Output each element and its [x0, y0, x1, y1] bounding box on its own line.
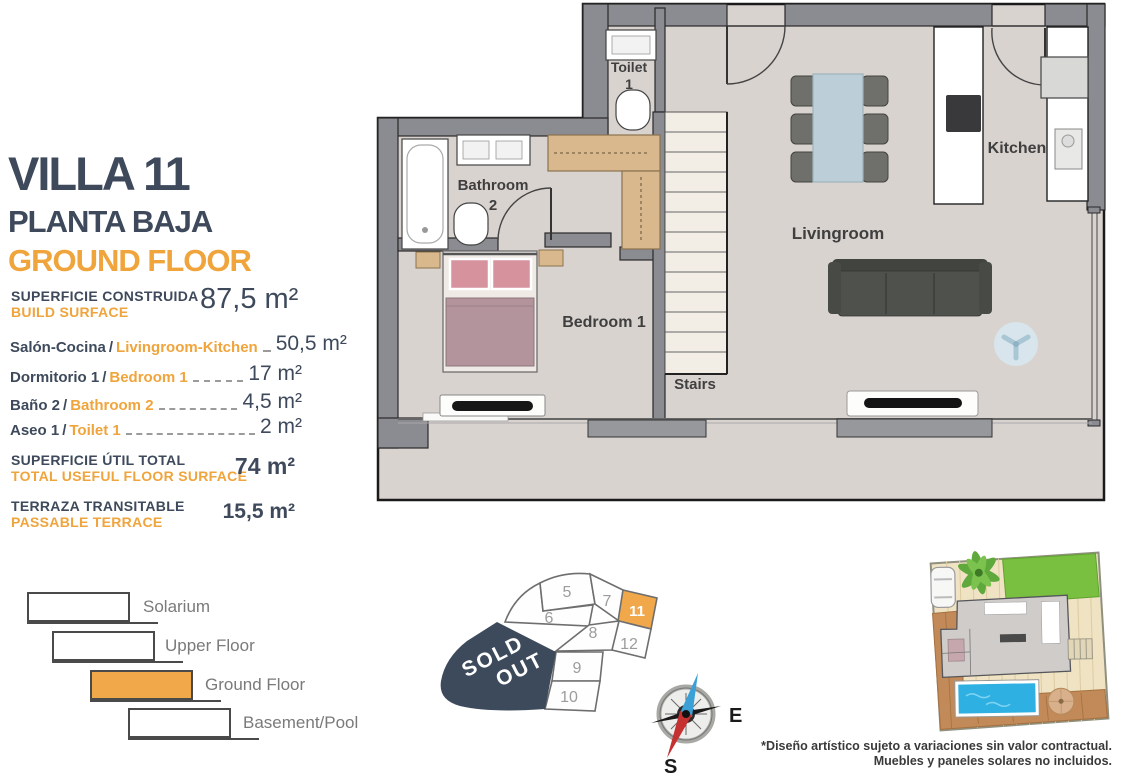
kitchen-label: Kitchen — [988, 140, 1047, 157]
legend-box-solarium — [27, 592, 130, 622]
disclaimer: *Diseño artístico sujeto a variaciones s… — [692, 739, 1112, 770]
legend-box-basement-pool — [128, 708, 231, 738]
area-row-label-en: Livingroom-Kitchen — [116, 339, 258, 356]
legend-item-upper-floor: Upper Floor — [52, 631, 272, 671]
bedroom-label: Bedroom 1 — [562, 314, 646, 331]
build-surface-value: 87,5 m² — [200, 283, 298, 316]
build-surface-label-en: BUILD SURFACE — [11, 304, 128, 320]
area-row-label-es: Salón-Cocina — [10, 339, 106, 356]
area-row-value: 2 m² — [260, 415, 302, 439]
plot-number-10: 10 — [560, 689, 578, 706]
floor-name-en: GROUND FLOOR — [8, 243, 251, 279]
livingroom-label: Livingroom — [792, 224, 885, 243]
fan — [994, 322, 1038, 366]
legend-baseline — [27, 622, 158, 624]
plot-number-5: 5 — [563, 584, 572, 601]
dining-set — [791, 74, 888, 182]
page-title: VILLA 11 — [8, 146, 189, 201]
legend-item-basement-pool: Basement/Pool — [128, 708, 378, 748]
dotted-leader — [126, 433, 255, 435]
legend-item-ground-floor: Ground Floor — [90, 670, 330, 710]
compass-east-label: E — [729, 705, 742, 727]
legend-box-ground-floor-highlighted — [90, 670, 193, 700]
area-row-label-en: Bathroom 2 — [70, 397, 153, 414]
plot-number-7: 7 — [603, 593, 612, 610]
sofa — [828, 259, 992, 316]
legend-item-solarium: Solarium — [27, 592, 247, 632]
sliding-door — [837, 419, 992, 437]
useful-surface-value: 74 m² — [180, 453, 295, 480]
bathroom-label: Bathroom — [458, 177, 529, 194]
area-row-bathroom-2: Baño 2 / Bathroom 2 4,5 m² — [10, 390, 302, 414]
plot-number-12: 12 — [620, 636, 638, 653]
area-row-value: 50,5 m² — [276, 332, 347, 356]
parasol — [1048, 688, 1074, 714]
disclaimer-line1: *Diseño artístico sujeto a variaciones s… — [692, 739, 1112, 754]
legend-label: Solarium — [143, 597, 210, 617]
plot-number-11: 11 — [629, 603, 645, 620]
bathroom-number: 2 — [489, 197, 497, 214]
area-row-label-es: Baño 2 — [10, 397, 60, 414]
area-row-label-en: Bedroom 1 — [109, 369, 187, 386]
mini-stairs — [1068, 639, 1092, 659]
living-tv-unit — [847, 391, 978, 416]
area-row-bedroom-1: Dormitorio 1 / Bedroom 1 17 m² — [10, 362, 302, 386]
legend-box-upper-floor — [52, 631, 155, 661]
plot-number-9: 9 — [573, 660, 582, 677]
area-row-label-es: Aseo 1 — [10, 422, 59, 439]
plot-number-6: 6 — [545, 610, 554, 627]
legend-baseline — [128, 738, 259, 740]
plot-map: 5 7 11 6 8 12 9 10 SOLD OUT — [441, 573, 657, 711]
terrace-label-en: PASSABLE TERRACE — [11, 514, 163, 530]
separator: / — [62, 422, 66, 439]
legend-label: Ground Floor — [205, 675, 305, 695]
plot-number-8: 8 — [589, 625, 598, 642]
legend-baseline — [90, 700, 221, 702]
area-row-living-kitchen: Salón-Cocina / Livingroom-Kitchen 50,5 m… — [10, 332, 302, 356]
toilet-label: Toilet — [611, 59, 648, 75]
useful-surface-label-es: SUPERFICIE ÚTIL TOTAL — [11, 452, 185, 468]
floor-name-es: PLANTA BAJA — [8, 204, 212, 240]
toilet-number: 1 — [625, 76, 633, 92]
sliding-door — [588, 420, 706, 437]
stairs — [665, 112, 727, 374]
site-plan-thumbnail — [930, 548, 1108, 731]
terrace-label-es: TERRAZA TRANSITABLE — [11, 498, 185, 514]
separator: / — [109, 339, 113, 356]
area-row-label-es: Dormitorio 1 — [10, 369, 99, 386]
terrace-value: 15,5 m² — [180, 500, 295, 524]
compass-south-label: S — [664, 756, 677, 778]
area-row-value: 4,5 m² — [242, 390, 302, 414]
disclaimer-line2: Muebles y paneles solares no incluidos. — [692, 754, 1112, 769]
separator: / — [102, 369, 106, 386]
legend-label: Upper Floor — [165, 636, 255, 656]
area-row-value: 17 m² — [248, 362, 302, 386]
separator: / — [63, 397, 67, 414]
area-row-label-en: Toilet 1 — [69, 422, 120, 439]
floor-plan: Toilet 1 Bathroom 2 Bedroom 1 Stairs Liv… — [378, 4, 1105, 500]
mini-pool — [955, 680, 1040, 717]
dotted-leader — [263, 350, 271, 352]
legend-baseline — [52, 661, 183, 663]
build-surface-label-es: SUPERFICIE CONSTRUIDA — [11, 288, 199, 304]
area-row-toilet-1: Aseo 1 / Toilet 1 2 m² — [10, 415, 302, 439]
stairs-label: Stairs — [674, 376, 716, 393]
legend-label: Basement/Pool — [243, 713, 358, 733]
mini-house — [940, 595, 1070, 677]
dotted-leader — [193, 380, 244, 382]
flyer-page: Toilet 1 Bathroom 2 Bedroom 1 Stairs Liv… — [0, 0, 1143, 782]
mini-car — [931, 567, 956, 607]
dotted-leader — [159, 408, 238, 410]
bedroom-tv-unit — [440, 395, 545, 416]
